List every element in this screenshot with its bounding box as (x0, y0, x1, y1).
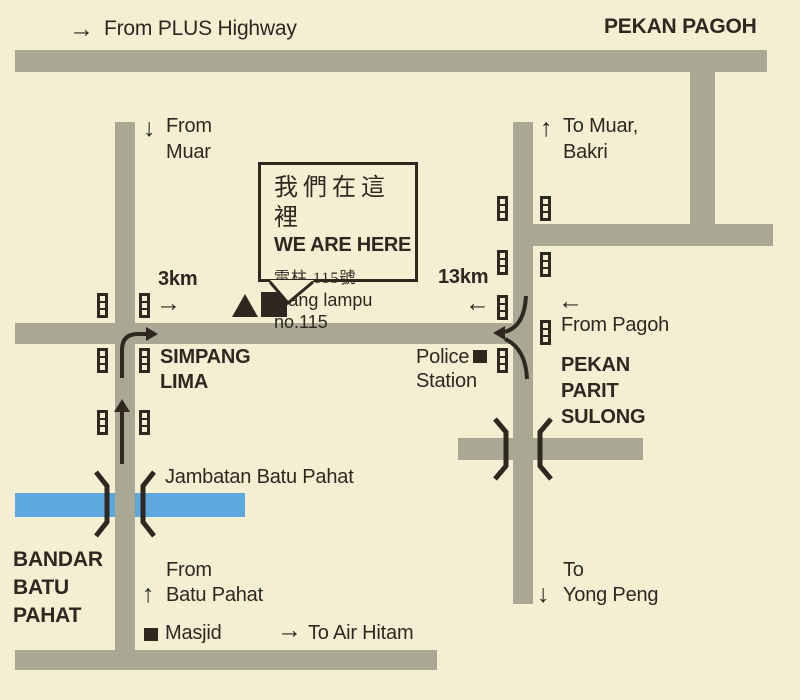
shophouse-icon (139, 293, 150, 318)
shophouse-icon (97, 410, 108, 435)
from-batu-pahat-arrow-icon: ↑ (142, 582, 155, 607)
road-parit-sulong-cross (458, 438, 643, 460)
label-from-muar-line2: Muar (166, 139, 212, 165)
label-13km: 13km (438, 264, 488, 290)
shophouse-icon (497, 295, 508, 320)
shophouse-icon (497, 250, 508, 275)
road-secondary-right (533, 224, 773, 246)
callout-tiang-lampu: Tiang lampu no.115 (274, 289, 415, 333)
label-bandar-line2: BATU (13, 574, 103, 602)
label-to-muar-line1: To Muar, (563, 113, 638, 139)
shophouse-icon (497, 196, 508, 221)
label-parit-sulong-line1: PEKAN (561, 352, 645, 378)
13km-arrow-icon: ← (465, 291, 490, 316)
label-from-plus-highway: From PLUS Highway (104, 16, 297, 42)
callout-chinese-title: 我們在這裡 (274, 173, 415, 233)
label-from-batu-pahat-line1: From (166, 557, 212, 583)
road-right-vertical (513, 122, 533, 604)
label-from-pagoh: From Pagoh (561, 312, 669, 338)
shophouse-icon (139, 348, 150, 373)
label-masjid: Masjid (165, 620, 222, 646)
label-from-batu-pahat-line2: Batu Pahat (166, 582, 263, 608)
shophouse-icon (540, 196, 551, 221)
label-pekan-pagoh: PEKAN PAGOH (604, 14, 757, 40)
from-plus-highway-arrow-icon: → (69, 17, 94, 42)
to-yong-peng-arrow-icon: ↓ (537, 582, 550, 607)
shophouse-icon (97, 348, 108, 373)
shophouse-icon (139, 410, 150, 435)
label-to-yong-peng-line2: Yong Peng (563, 582, 658, 608)
masjid-icon (144, 628, 158, 641)
shophouse-icon (540, 320, 551, 345)
label-to-yong-peng-line1: To (563, 557, 584, 583)
label-pekan-parit-sulong: PEKAN PARIT SULONG (561, 352, 645, 430)
callout-chinese-lamp-post: 電柱 115號 (274, 269, 415, 289)
label-to-muar-bakri: To Muar, Bakri (563, 113, 638, 165)
road-right-stub (690, 72, 715, 226)
road-main-horizontal (15, 323, 513, 344)
label-parit-sulong-line2: PARIT (561, 378, 645, 404)
we-are-here-callout: 我們在這裡 WE ARE HERE 電柱 115號 Tiang lampu no… (258, 162, 418, 282)
label-parit-sulong-line3: SULONG (561, 404, 645, 430)
label-police-station: Police Station (416, 345, 477, 393)
road-bottom (15, 650, 437, 670)
label-from-muar-line1: From (166, 113, 212, 139)
label-simpang-lima: SIMPANG LIMA (160, 345, 250, 395)
to-muar-bakri-arrow-icon: ↑ (540, 116, 553, 141)
road-left-vertical (115, 122, 135, 668)
label-from-muar: From Muar (166, 113, 212, 165)
callout-we-are-here: WE ARE HERE (274, 233, 415, 257)
label-bandar-line3: PAHAT (13, 602, 103, 630)
label-bandar-line1: BANDAR (13, 546, 103, 574)
from-pagoh-arrow-icon: ← (558, 289, 583, 314)
3km-arrow-icon: → (156, 291, 181, 316)
to-air-hitam-arrow-icon: → (277, 618, 302, 643)
label-police-line2: Station (416, 369, 477, 393)
road-map: → From PLUS Highway PEKAN PAGOH ↓ From M… (0, 0, 800, 700)
label-jambatan-batu-pahat: Jambatan Batu Pahat (165, 464, 354, 490)
label-simpang-lima-line1: SIMPANG (160, 345, 250, 370)
shophouse-icon (497, 348, 508, 373)
landmark-triangle-icon (232, 294, 258, 317)
label-to-muar-line2: Bakri (563, 139, 638, 165)
label-bandar-batu-pahat: BANDAR BATU PAHAT (13, 546, 103, 630)
label-to-air-hitam: To Air Hitam (308, 620, 413, 646)
label-simpang-lima-line2: LIMA (160, 370, 250, 395)
road-top-highway (15, 50, 767, 72)
shophouse-icon (97, 293, 108, 318)
shophouse-icon (540, 252, 551, 277)
from-muar-arrow-icon: ↓ (143, 116, 156, 141)
label-police-line1: Police (416, 345, 477, 369)
